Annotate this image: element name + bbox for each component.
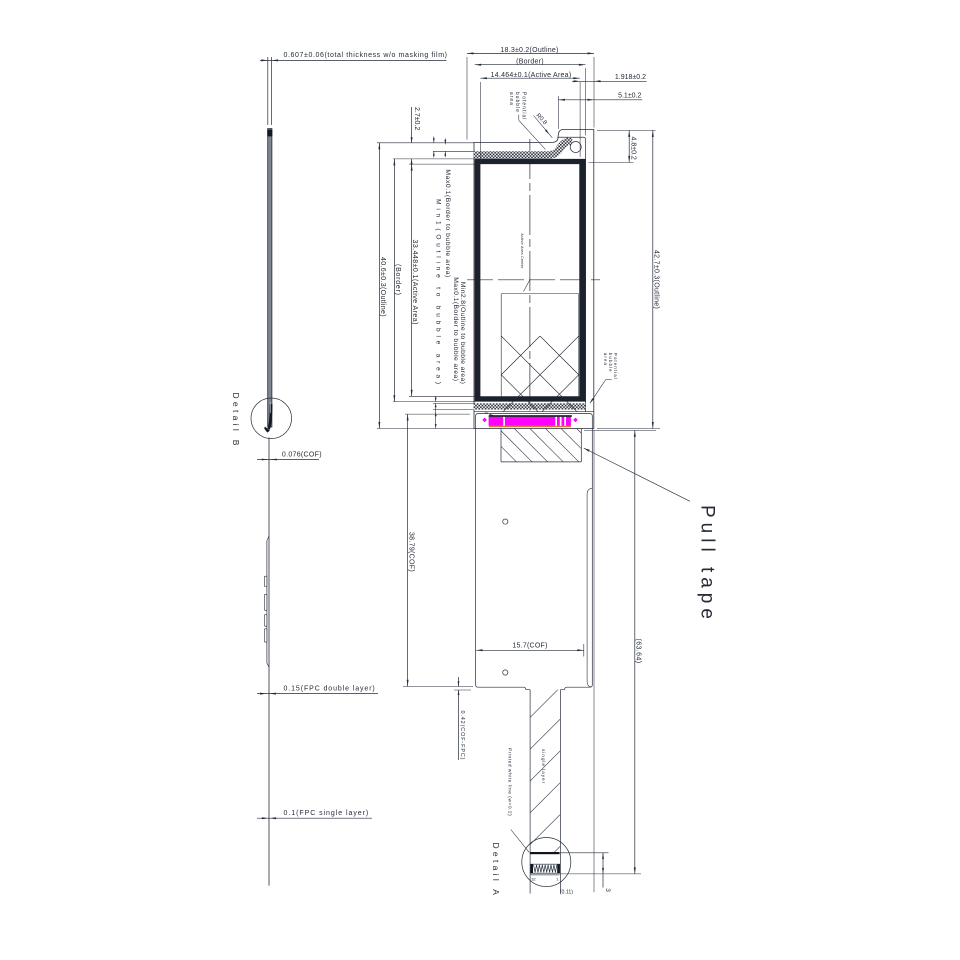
svg-text:34: 34 (484, 411, 488, 415)
svg-text:0.607±0.06(total thickness w/o: 0.607±0.06(total thickness w/o masking f… (284, 52, 448, 59)
svg-text:40.6±0.3(Outline): 40.6±0.3(Outline) (379, 257, 386, 317)
svg-text:Max0.1(Border to bubble area): Max0.1(Border to bubble area) (444, 169, 451, 278)
svg-text:Printed white line (w=0.2): Printed white line (w=0.2) (507, 748, 513, 816)
svg-text:33.448±0.1(Active Area): 33.448±0.1(Active Area) (411, 240, 418, 325)
svg-text:(Border): (Border) (516, 58, 544, 65)
svg-text:5.1±0.2: 5.1±0.2 (618, 92, 641, 99)
svg-text:area: area (603, 353, 608, 366)
svg-text:4.8±0.2: 4.8±0.2 (630, 137, 637, 160)
svg-text:Detail A: Detail A (491, 843, 501, 899)
svg-text:Min1(Outline to bubble area): Min1(Outline to bubble area) (435, 199, 442, 388)
svg-text:0.076(COF): 0.076(COF) (282, 452, 322, 459)
svg-text:Detail B: Detail B (231, 393, 241, 449)
svg-text:32: 32 (531, 877, 536, 882)
svg-text:0.42(COF-FPC): 0.42(COF-FPC) (459, 711, 465, 761)
svg-text:18.3±0.2(Outline): 18.3±0.2(Outline) (500, 47, 558, 54)
svg-text:area: area (508, 92, 514, 106)
svg-text:single layer: single layer (540, 749, 546, 784)
svg-text:Pull tape: Pull tape (697, 505, 718, 624)
svg-text:0.15(FPC double layer): 0.15(FPC double layer) (284, 686, 376, 693)
svg-text:Active Area Center: Active Area Center (520, 233, 524, 269)
svg-text:14.464±0.1(Active Area): 14.464±0.1(Active Area) (491, 72, 572, 79)
svg-text:Min2.8(Outline to bubble area): Min2.8(Outline to bubble area) (459, 282, 466, 384)
svg-text:(63.64): (63.64) (634, 639, 641, 664)
svg-text:(0.11): (0.11) (560, 890, 573, 896)
svg-text:15.7(COF): 15.7(COF) (512, 642, 547, 649)
svg-text:Potential: Potential (520, 92, 526, 120)
svg-text:1.918±0.2: 1.918±0.2 (615, 74, 646, 81)
svg-text:bubble: bubble (514, 92, 520, 113)
svg-text:38.79(COF): 38.79(COF) (408, 532, 415, 572)
svg-text:3: 3 (604, 888, 611, 892)
svg-text:Max0.1(Border to bubble area): Max0.1(Border to bubble area) (452, 277, 459, 381)
svg-text:0.1(FPC single layer): 0.1(FPC single layer) (284, 810, 370, 817)
svg-text:2.7±0.2: 2.7±0.2 (413, 107, 420, 130)
svg-text:(Border): (Border) (394, 264, 401, 296)
svg-text:42.7±0.3(Outline): 42.7±0.3(Outline) (653, 250, 660, 309)
